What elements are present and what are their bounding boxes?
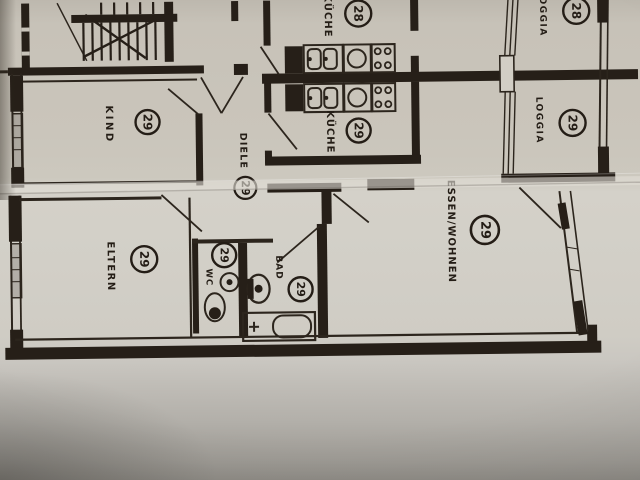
room-name: KIND: [103, 105, 114, 143]
unit-number: 29: [565, 114, 579, 131]
unit-number: 29: [218, 247, 231, 262]
room-label-kueche-28: KÜCHE 28: [321, 0, 371, 38]
floorplan-drawing: KÜCHE 28 LOGGIA 28 KIND 29 KÜCHE: [0, 0, 640, 480]
door-eltern: [161, 194, 201, 231]
door-stair-left: [201, 77, 221, 113]
fridge-icon: [285, 84, 303, 111]
unit-number: 28: [351, 5, 365, 22]
stove-icon: [372, 44, 395, 72]
room-label-kind: KIND 29: [103, 105, 160, 144]
room-label-eltern: ELTERN 29: [105, 241, 158, 292]
room-label-essen-wohnen: ESSEN/WOHNEN 29: [445, 179, 500, 283]
room-name: LOGGIA: [537, 0, 548, 37]
kitchen-sink-icon: [304, 84, 343, 112]
kitchen-sink-icon: [304, 45, 343, 73]
wall-wc-left: [192, 238, 199, 333]
wall-kitchen-bottom: [265, 155, 421, 166]
room-name: DIELE: [237, 133, 248, 170]
door-kueche-29: [268, 113, 296, 149]
wall-unit-divider: [262, 69, 638, 84]
fridge-icon: [285, 46, 303, 73]
door-essen-wohnen: [333, 193, 368, 222]
floorplan-photo: KÜCHE 28 LOGGIA 28 KIND 29 KÜCHE: [0, 0, 640, 480]
door-balcony: [519, 187, 560, 228]
window-kind: [12, 114, 23, 168]
washbasin-icon: [220, 273, 238, 291]
stairs-icon: [71, 2, 178, 61]
unit-number: 29: [294, 282, 307, 297]
loggia-window-front: [499, 0, 520, 174]
wall-kind-right: [195, 113, 203, 185]
wall-bad-right: [317, 224, 328, 338]
unit-number: 29: [137, 251, 151, 268]
room-name: KÜCHE: [321, 0, 336, 38]
room-label-loggia-28: LOGGIA 28: [537, 0, 590, 37]
unit-number: 29: [140, 114, 154, 131]
hob-icon: [344, 44, 371, 72]
room-name: ESSEN/WOHNEN: [445, 180, 457, 283]
loggia-door: [500, 56, 514, 92]
room-name: WC: [203, 268, 213, 286]
window-essen-wohnen: [559, 191, 588, 335]
unit-number: 28: [569, 2, 583, 19]
washbasin-icon: [247, 275, 269, 303]
wall-bottom: [5, 341, 601, 360]
room-name: ELTERN: [105, 241, 117, 291]
door-stair-right: [221, 77, 243, 113]
hob-icon: [344, 83, 371, 111]
kitchen-28-fixtures: [285, 44, 395, 73]
window-eltern: [11, 244, 22, 298]
room-label-loggia-29: LOGGIA 29: [533, 96, 586, 144]
room-label-kueche-29: KÜCHE 29: [324, 110, 371, 154]
door-kueche-28: [261, 46, 279, 74]
room-name: KÜCHE: [324, 110, 339, 153]
door-kind: [168, 88, 198, 114]
wall-top-left: [8, 65, 204, 75]
stove-icon: [372, 83, 395, 111]
room-name: LOGGIA: [533, 97, 544, 144]
kitchen-29-fixtures: [285, 83, 395, 112]
toilet-icon: [205, 293, 225, 321]
unit-number: 29: [477, 221, 492, 239]
unit-number: 29: [352, 122, 366, 139]
room-name: BAD: [273, 255, 283, 279]
room-label-bad: BAD 29: [273, 255, 313, 302]
